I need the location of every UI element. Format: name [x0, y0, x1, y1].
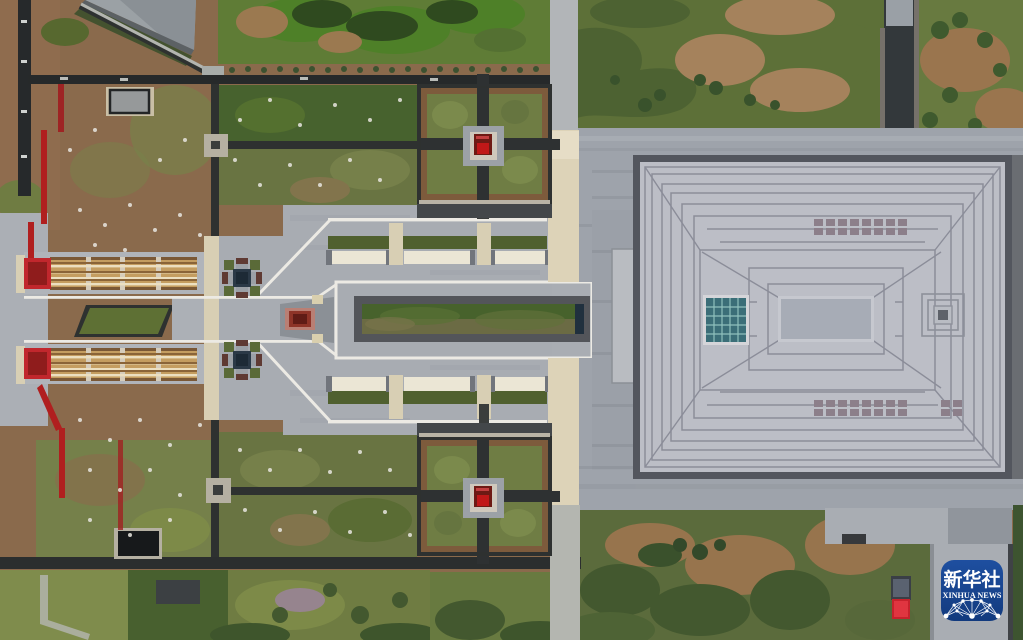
- svg-text:新华社: 新华社: [943, 568, 1000, 591]
